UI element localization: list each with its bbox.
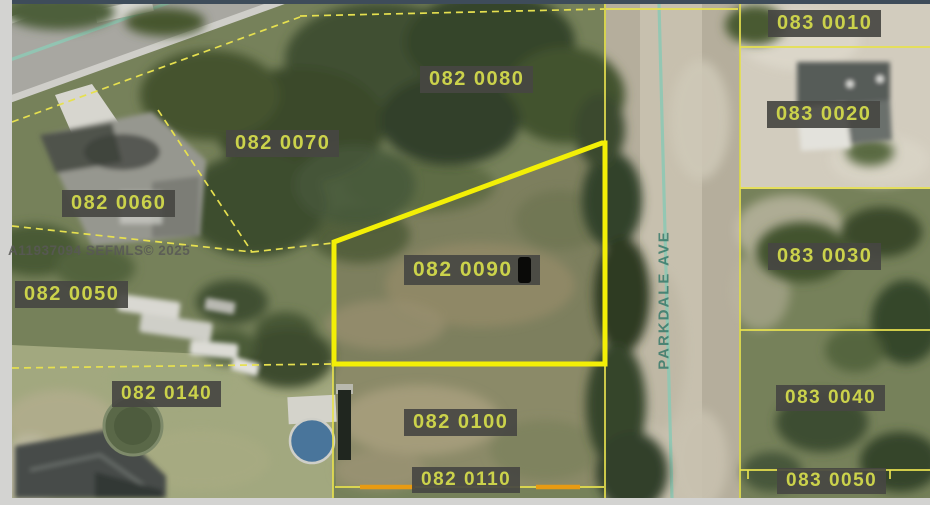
parcel-label-082-0090[interactable]: 082 0090 [404,255,540,285]
parcel-label-083-0030[interactable]: 083 0030 [768,243,881,270]
window-frame: A11937094 SEFMLS© 2025 PARKDALE AVE 082 … [0,0,930,505]
dark-post [336,384,353,460]
parcel-label-083-0010[interactable]: 083 0010 [768,10,881,37]
parcel-label-083-0040[interactable]: 083 0040 [776,385,885,411]
parcel-label-082-0110[interactable]: 082 0110 [412,467,520,493]
parcel-label-082-0070[interactable]: 082 0070 [226,130,339,157]
parcel-label-083-0050[interactable]: 083 0050 [777,468,886,494]
parcel-label-082-0050[interactable]: 082 0050 [15,281,128,308]
parcel-label-082-0100[interactable]: 082 0100 [404,409,517,436]
parcel-label-082-0140[interactable]: 082 0140 [112,381,221,407]
selected-parcel-marker [518,257,531,283]
parcel-label-082-0080[interactable]: 082 0080 [420,66,533,93]
parcel-label-082-0060[interactable]: 082 0060 [62,190,175,217]
round-pool-blue [290,419,334,463]
parcel-label-083-0020[interactable]: 083 0020 [767,101,880,128]
